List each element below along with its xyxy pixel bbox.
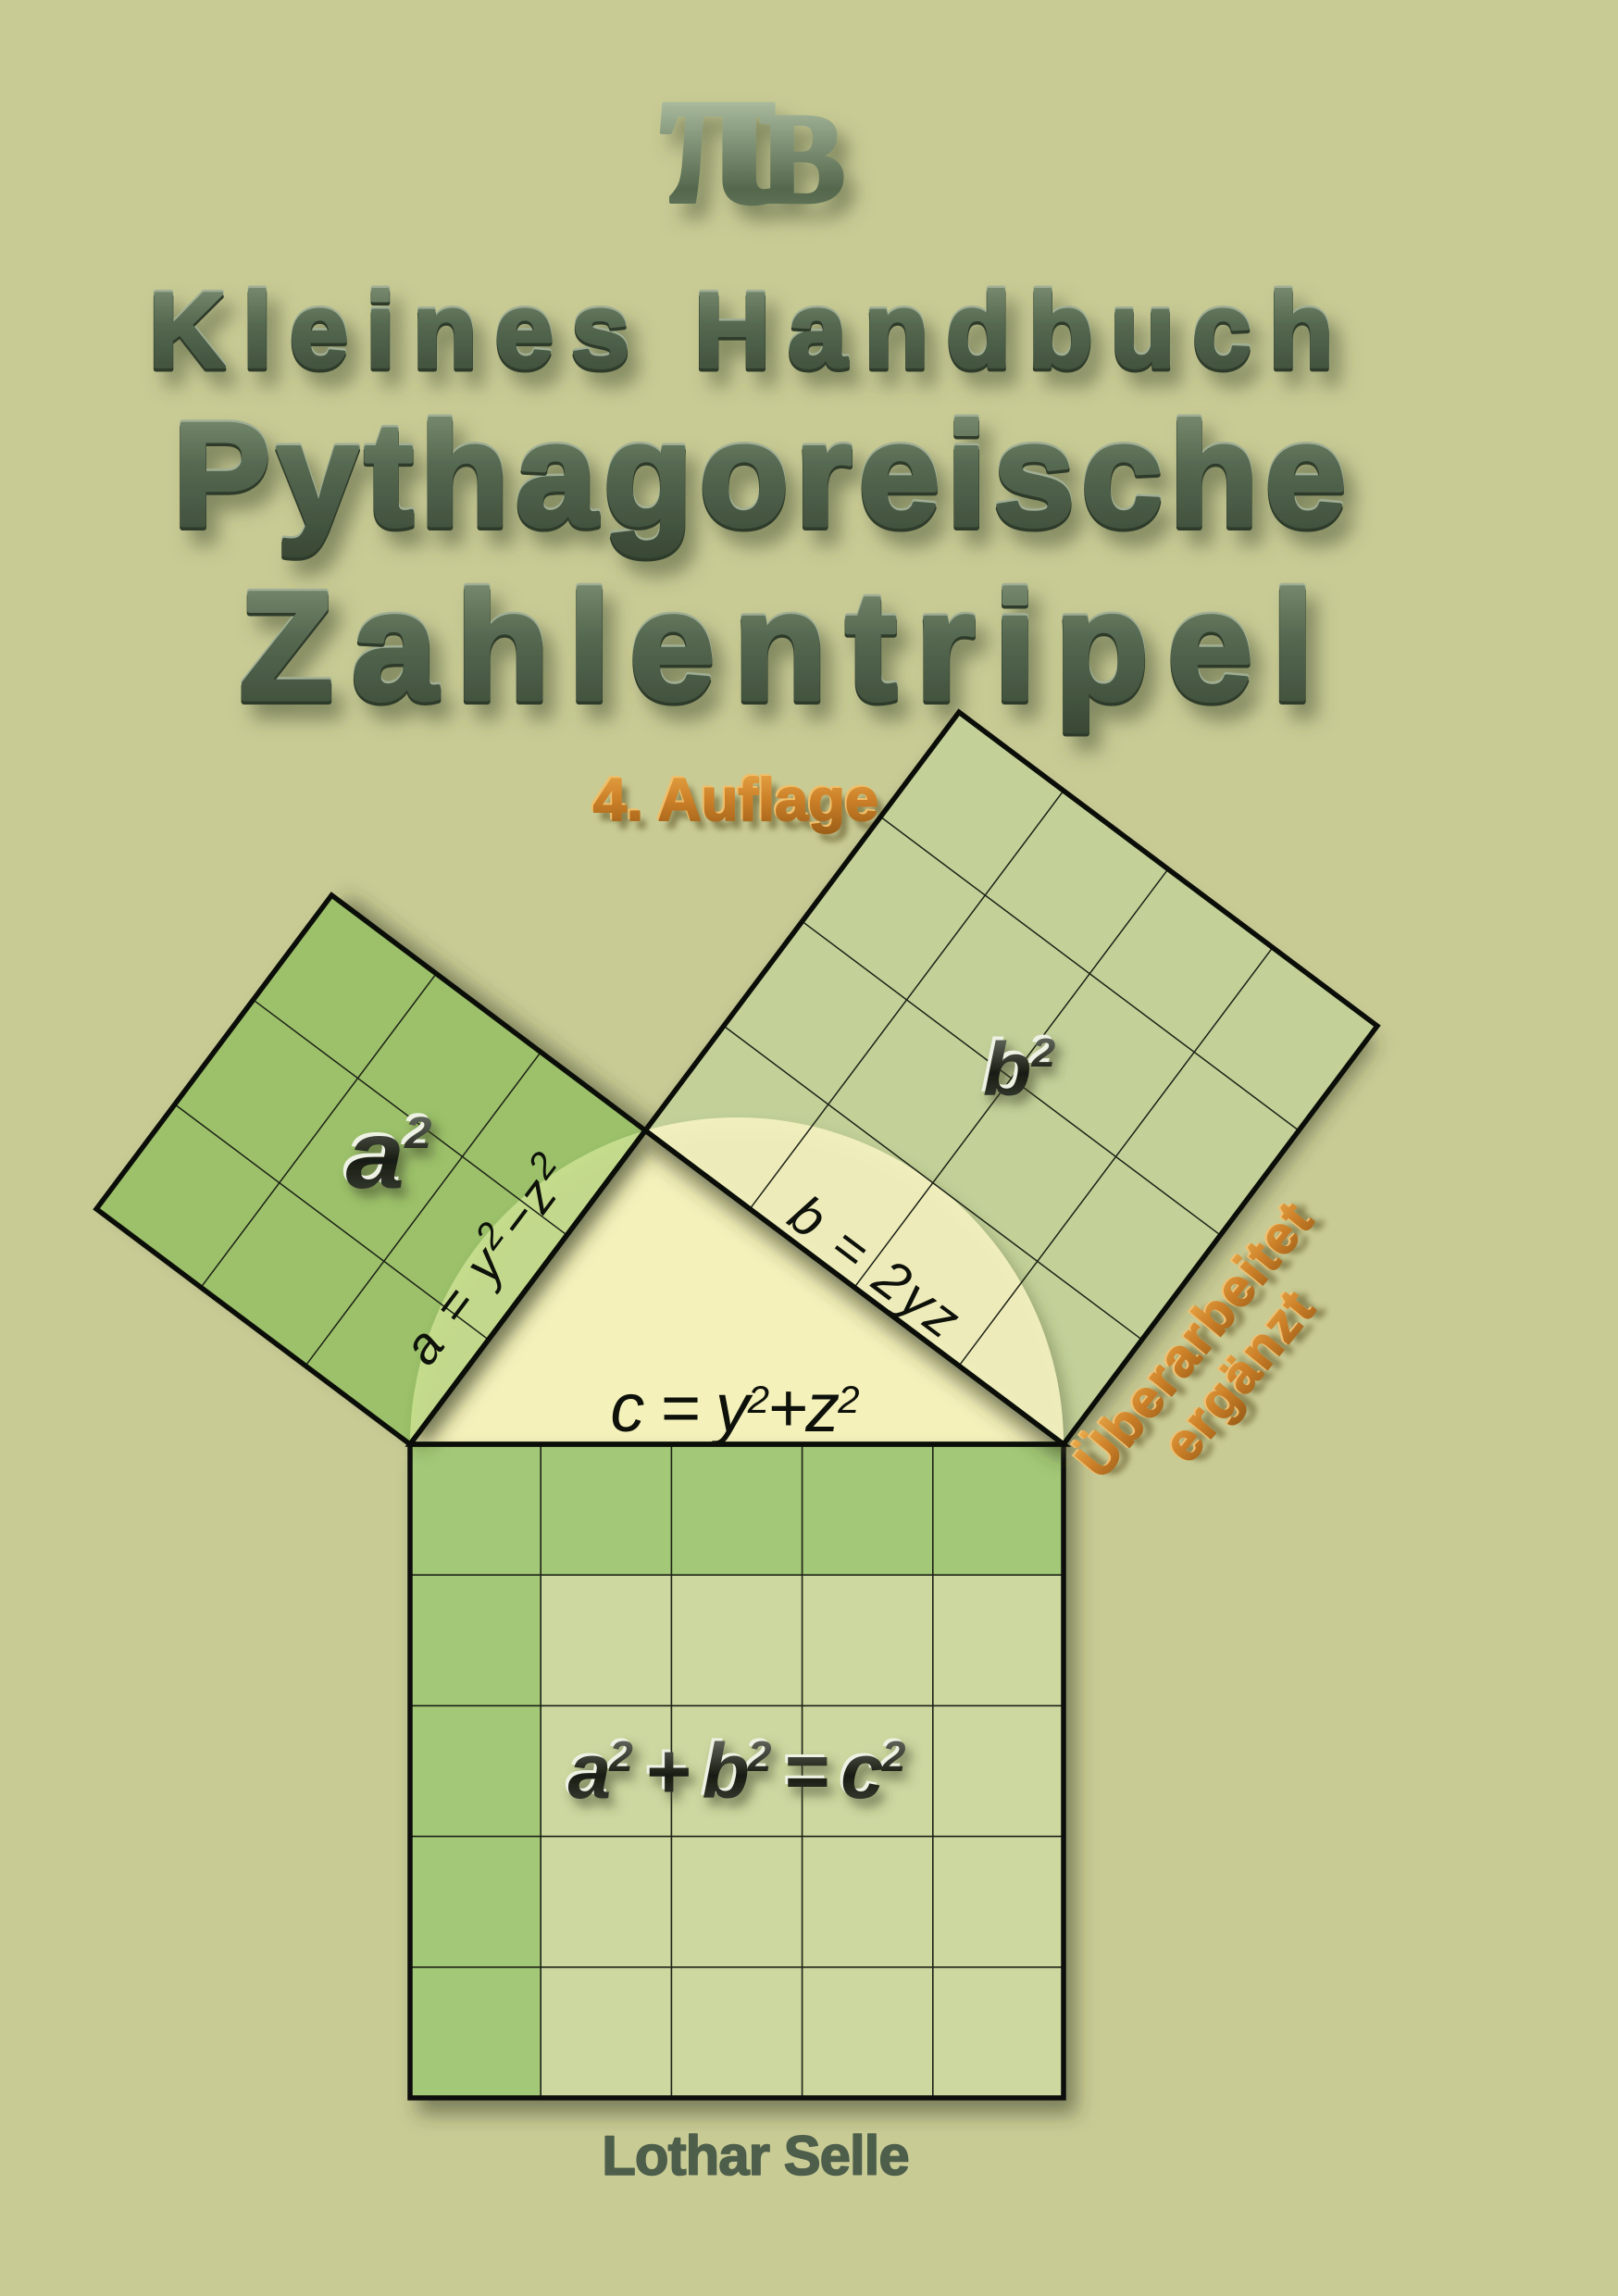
svg-text:Kleines Handbuch: Kleines Handbuch bbox=[149, 272, 1351, 390]
svg-text:c = y2+z2: c = y2+z2 bbox=[610, 1369, 859, 1446]
svg-text:Lothar Selle: Lothar Selle bbox=[602, 2125, 908, 2187]
svg-text:Pythagoreische: Pythagoreische bbox=[173, 393, 1353, 556]
svg-text:Zahlentripel: Zahlentripel bbox=[240, 561, 1333, 732]
svg-text:4. Auflage: 4. Auflage bbox=[593, 766, 878, 833]
